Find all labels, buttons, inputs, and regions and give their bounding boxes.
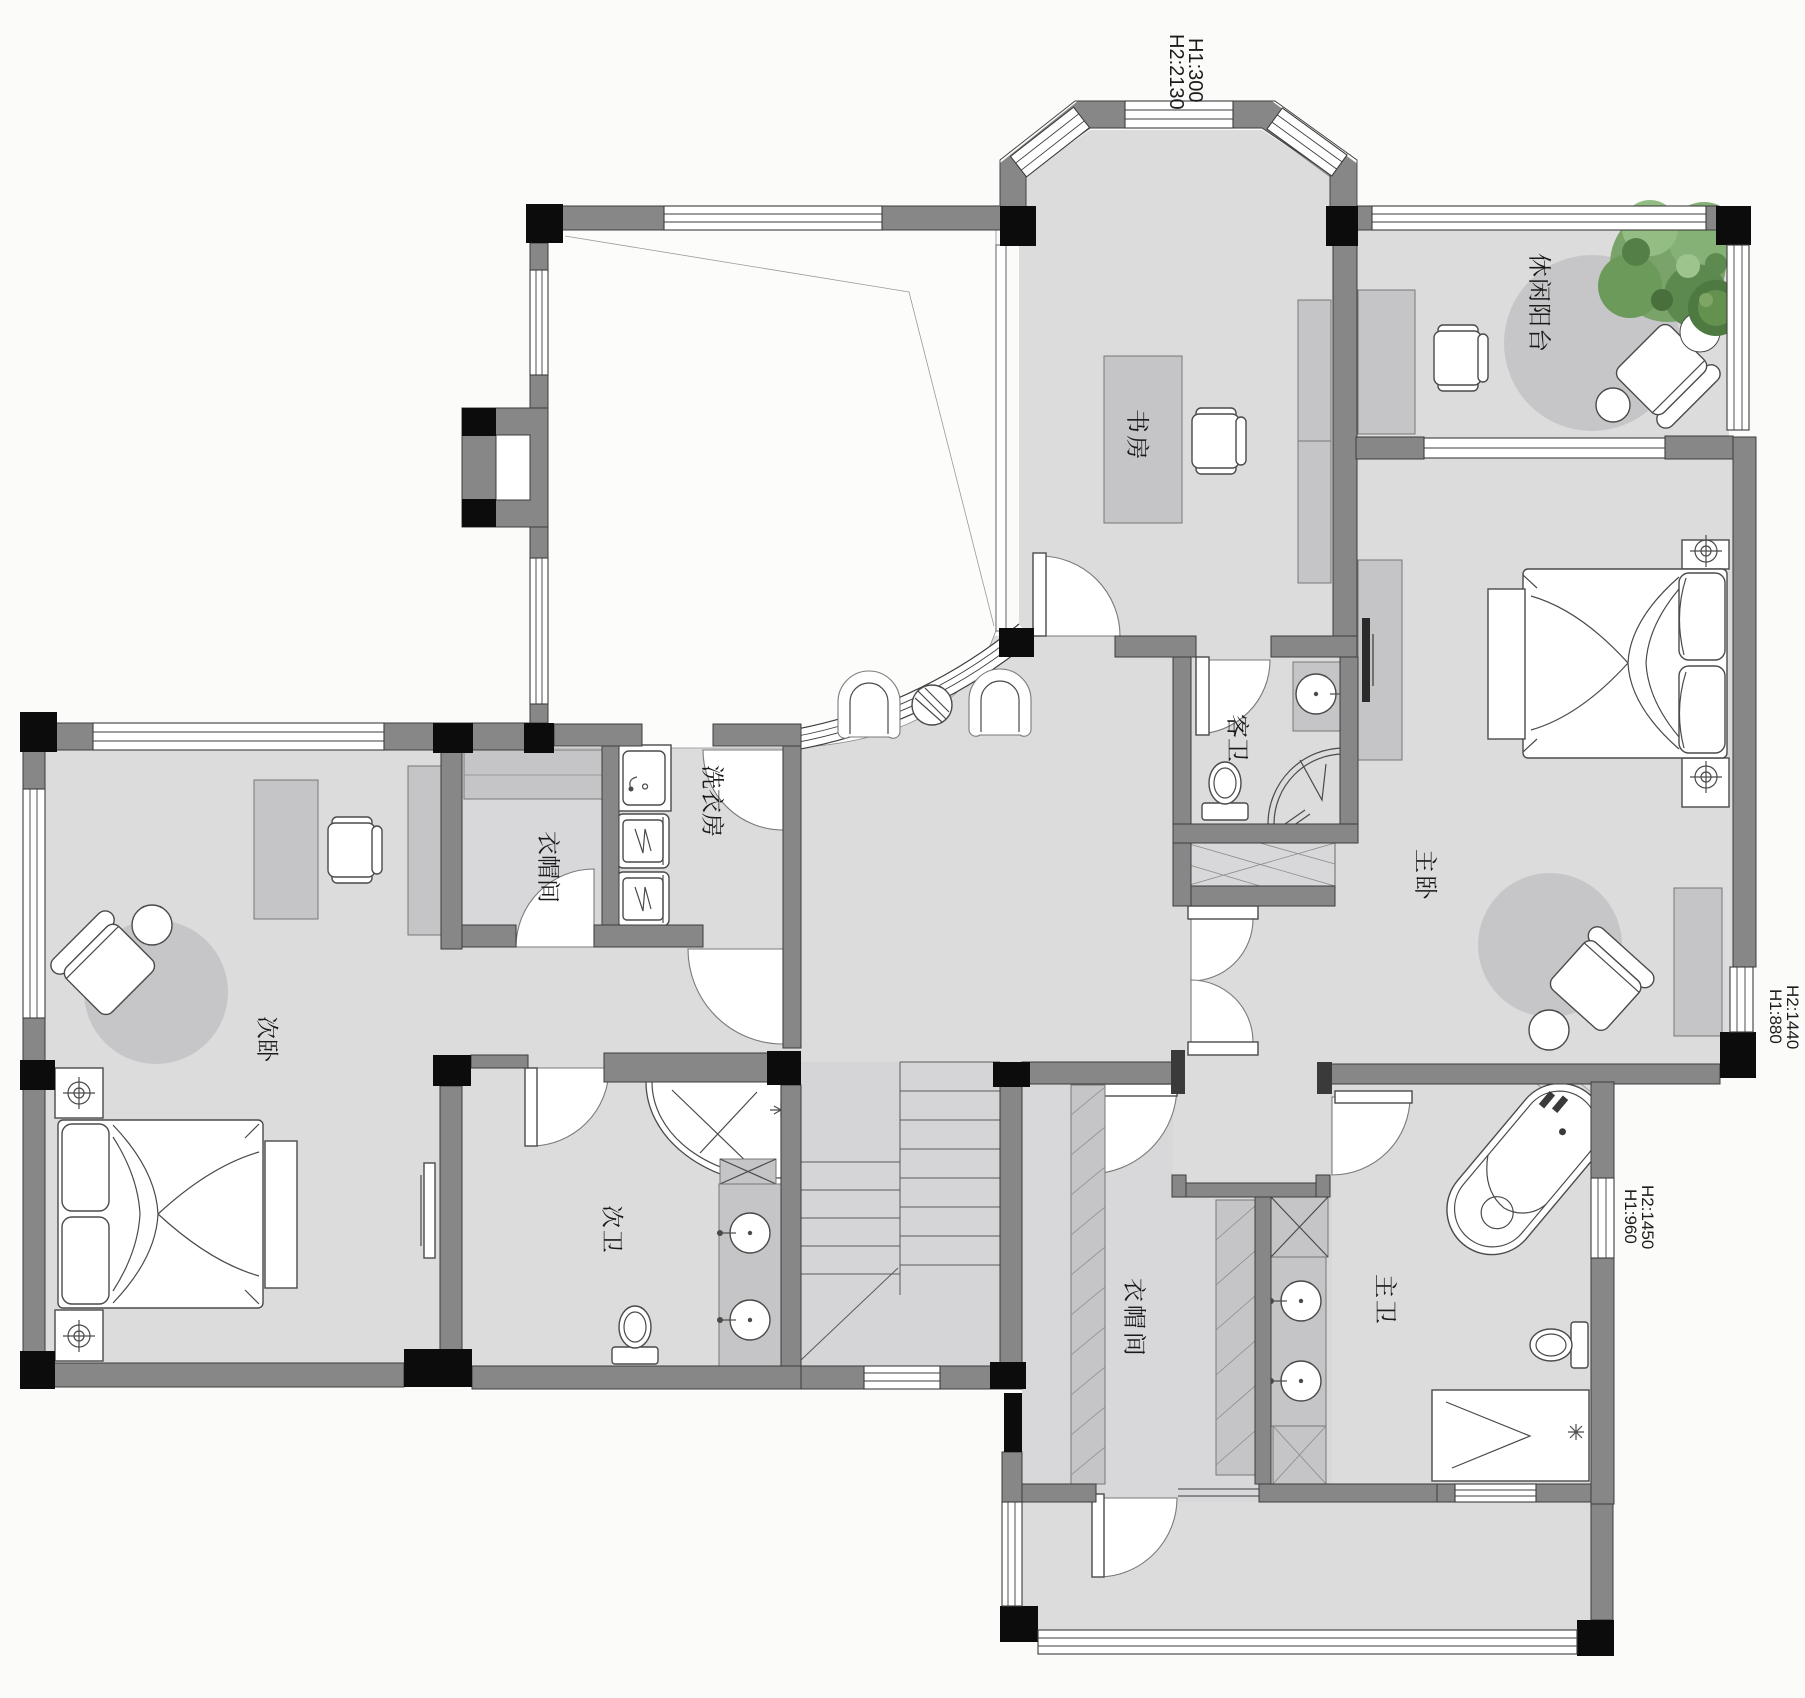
svg-text:H1:880: H1:880 <box>1766 989 1785 1044</box>
svg-text:H2:2130: H2:2130 <box>1165 34 1187 110</box>
svg-text:H1:960: H1:960 <box>1621 1189 1640 1244</box>
svg-text:H1:300: H1:300 <box>1184 38 1206 103</box>
